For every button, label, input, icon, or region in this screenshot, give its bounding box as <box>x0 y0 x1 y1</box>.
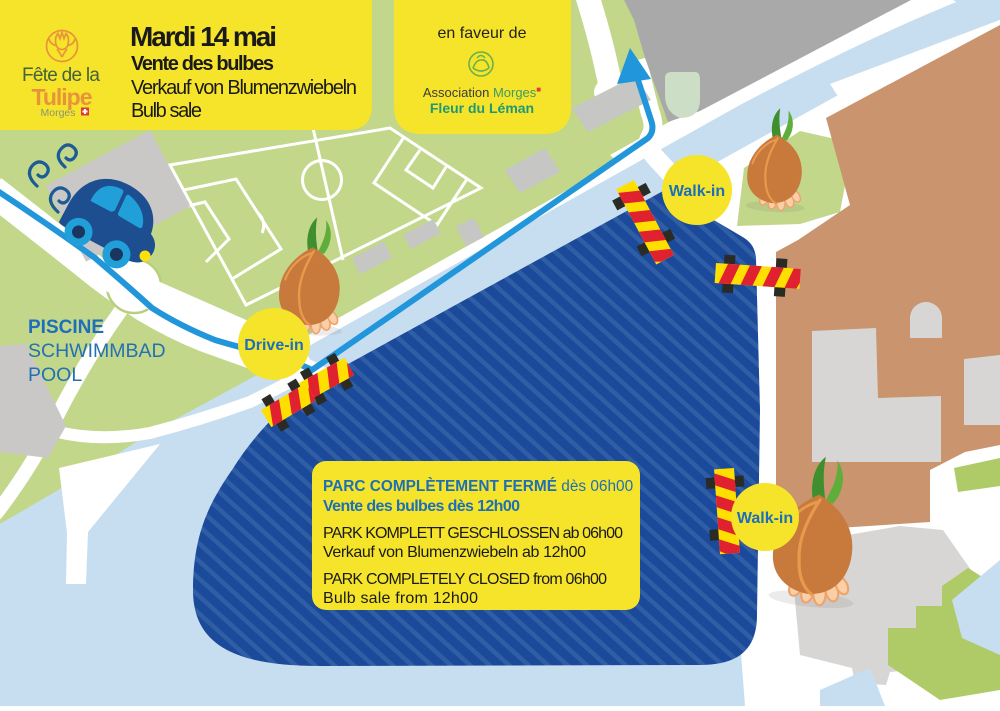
svg-text:Verkauf von Blumenzwiebeln: Verkauf von Blumenzwiebeln <box>131 77 357 99</box>
svg-text:PARK KOMPLETT GESCHLOSSEN ab 0: PARK KOMPLETT GESCHLOSSEN ab 06h00 <box>323 525 623 542</box>
svg-text:PARK COMPLETELY CLOSED from 06: PARK COMPLETELY CLOSED from 06h00 <box>323 571 607 588</box>
svg-text:Vente des bulbes: Vente des bulbes <box>131 53 274 75</box>
svg-text:PISCINE: PISCINE <box>28 317 104 338</box>
svg-text:Walk-in: Walk-in <box>669 183 725 200</box>
svg-text:Verkauf von Blumenzwiebeln ab: Verkauf von Blumenzwiebeln ab 12h00 <box>323 544 586 561</box>
svg-text:Morges: Morges <box>40 107 75 119</box>
svg-text:POOL: POOL <box>28 364 82 386</box>
svg-text:en faveur de: en faveur de <box>438 25 527 42</box>
svg-text:Vente des bulbes dès 12h00: Vente des bulbes dès 12h00 <box>323 498 520 515</box>
svg-text:Drive-in: Drive-in <box>244 337 304 354</box>
svg-text:Walk-in: Walk-in <box>737 510 793 527</box>
svg-text:Bulb sale from 12h00: Bulb sale from 12h00 <box>323 590 478 607</box>
svg-text:Bulb sale: Bulb sale <box>131 100 202 122</box>
svg-text:Mardi 14 mai: Mardi 14 mai <box>130 21 277 52</box>
svg-text:Fête de la: Fête de la <box>22 65 100 86</box>
svg-text:PARC COMPLÈTEMENT FERMÉ dès 06: PARC COMPLÈTEMENT FERMÉ dès 06h00 <box>323 478 633 495</box>
svg-text:Association Morges■: Association Morges■ <box>423 85 541 100</box>
svg-text:Fleur du Léman: Fleur du Léman <box>430 100 534 116</box>
svg-text:SCHWIMMBAD: SCHWIMMBAD <box>28 340 166 362</box>
